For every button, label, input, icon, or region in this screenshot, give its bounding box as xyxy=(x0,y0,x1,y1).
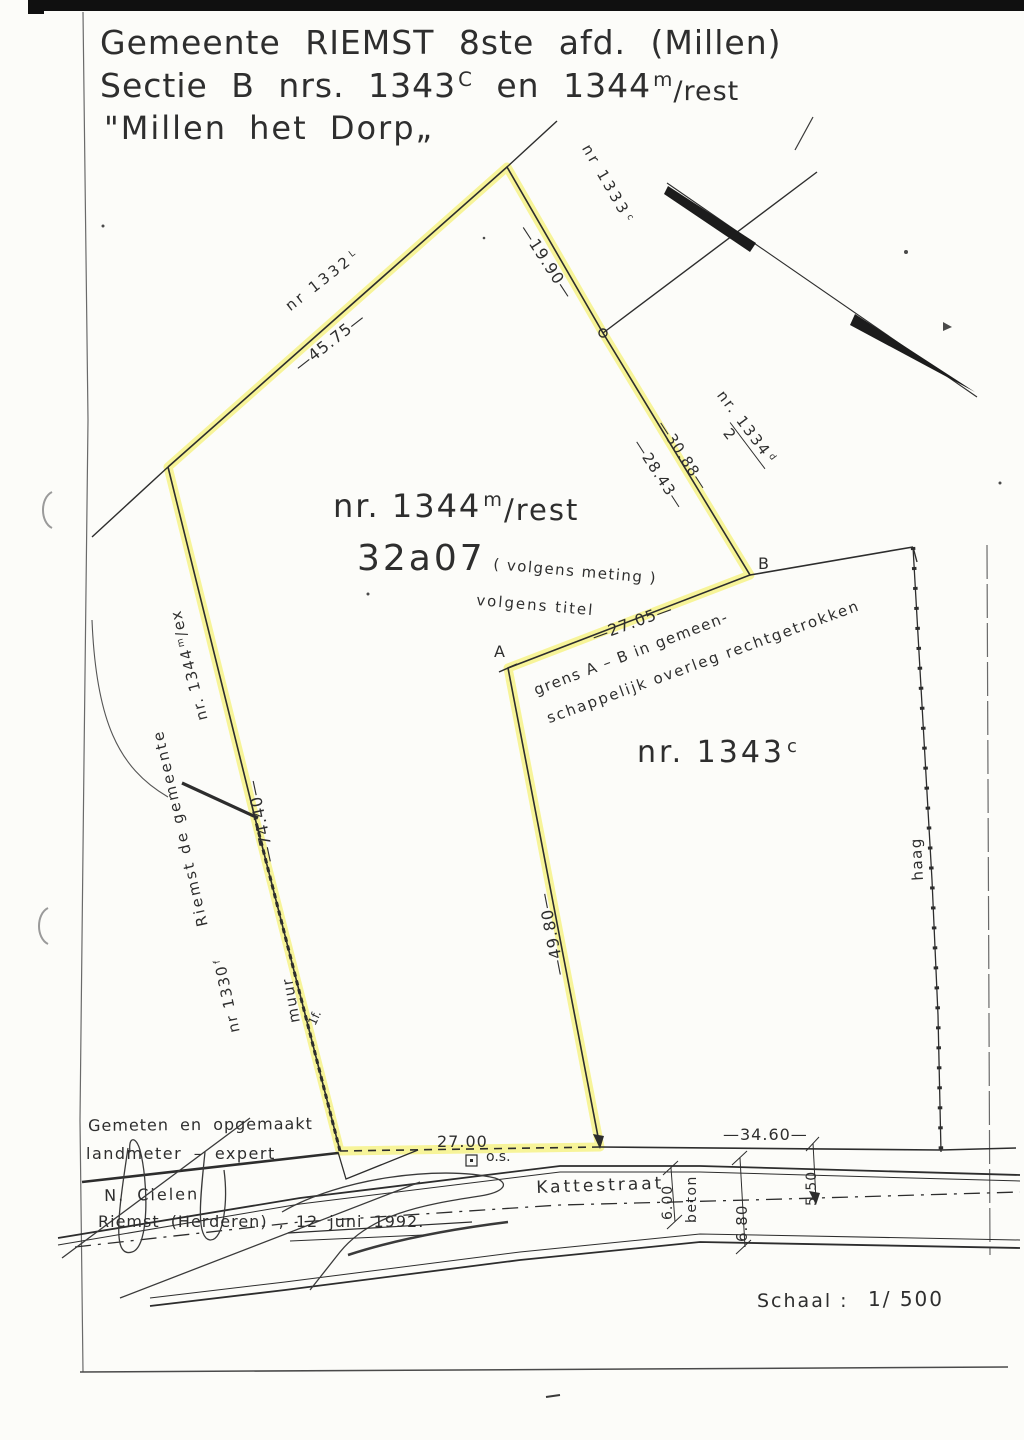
stray-stroke xyxy=(795,117,813,150)
frame-left xyxy=(80,12,88,1372)
measure-27-00: 27.00 xyxy=(437,1134,488,1151)
stray-stroke xyxy=(546,1395,560,1397)
highlight-parcel-1344 xyxy=(168,167,750,1151)
scale-label: Schaal : xyxy=(757,1292,849,1312)
parcel-1344-name: nr. 1344m/rest xyxy=(333,490,579,524)
ink-wedge xyxy=(664,186,756,252)
os-label: o.s. xyxy=(486,1150,511,1165)
cadastral-plan-sheet: Gemeente RIEMST 8ste afd. (Millen) Secti… xyxy=(0,0,1024,1440)
measure-34-60: —34.60— xyxy=(723,1127,808,1144)
punch-notch xyxy=(43,492,52,528)
ext-line-1333 xyxy=(507,121,557,167)
surveyor-name: N. Cielen xyxy=(104,1186,199,1204)
boundary-1343-north xyxy=(750,547,913,575)
beton-label: beton xyxy=(685,1175,700,1223)
footer-line2: landmeter – expert xyxy=(86,1146,276,1163)
measure-5-50: 5.50 xyxy=(805,1171,820,1206)
title-line2-text2: en 1344 xyxy=(496,66,651,105)
title-line1: Gemeente RIEMST 8ste afd. (Millen) xyxy=(100,26,781,61)
parcel-1343-name: nr. 1343c xyxy=(637,737,800,769)
point-a-label: A xyxy=(494,644,505,661)
scan-edge-strip xyxy=(28,0,1024,11)
survey-line-a xyxy=(603,172,817,333)
title-line2: Sectie B nrs. 1343C en 1344m/rest xyxy=(100,69,739,104)
sup-m: m xyxy=(653,68,673,91)
point-b-label: B xyxy=(758,556,769,573)
parcel-1344-area: 32a07 xyxy=(357,540,486,578)
frame-bottom xyxy=(80,1367,1008,1372)
punch-notch xyxy=(39,908,48,944)
scale-value: 1/ 500 xyxy=(868,1289,944,1310)
footer-date-line: Riemst (Herderen) , 12 juni 1992. xyxy=(98,1214,424,1231)
measure-6-80: 6.80 xyxy=(735,1205,751,1242)
ext-line-1332 xyxy=(92,467,168,537)
ink-wedge xyxy=(850,314,975,392)
title-line3: "Millen het Dorp„ xyxy=(104,112,434,146)
sup-c: C xyxy=(458,68,473,91)
title-line2-rest: /rest xyxy=(673,76,739,107)
title-line2-text: Sectie B nrs. 1343 xyxy=(100,66,456,105)
footer-line1: Gemeten en opgemaakt xyxy=(88,1116,313,1135)
haag-label: haag xyxy=(909,837,927,881)
boundary-1344 xyxy=(168,167,750,1147)
